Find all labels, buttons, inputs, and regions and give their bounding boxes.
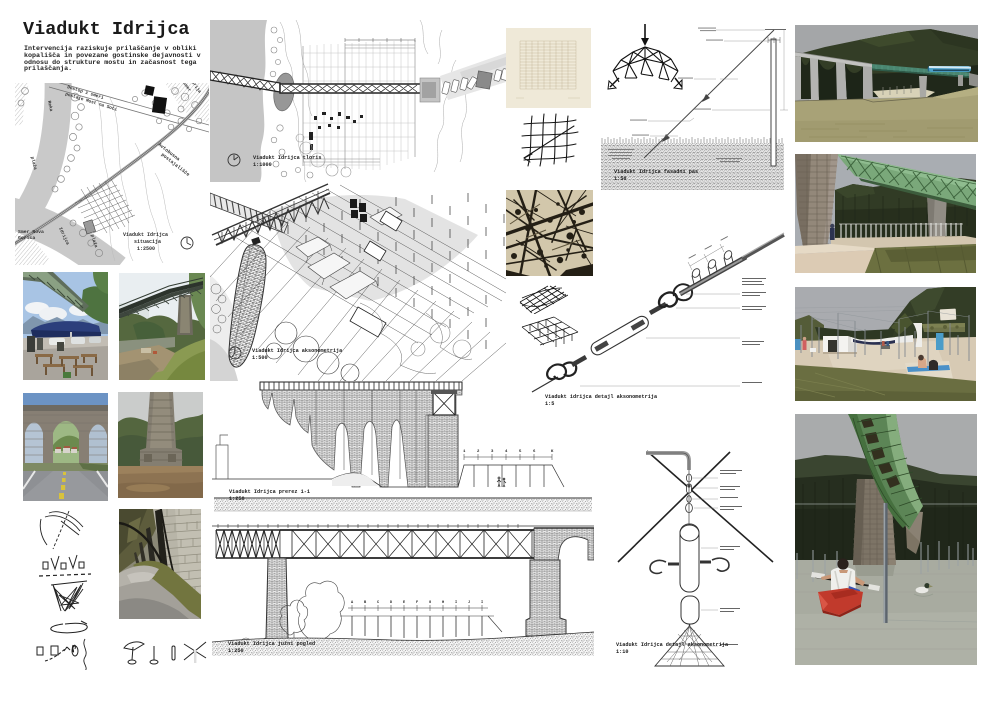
svg-text:Viadukt Idrijca prerez 1-1: Viadukt Idrijca prerez 1-1 <box>229 489 310 495</box>
svg-text:1:1000: 1:1000 <box>253 162 272 168</box>
svg-text:Viadukt idrijca detajl aksonom: Viadukt idrijca detajl aksonometrija <box>545 394 657 400</box>
svg-text:Gorica: Gorica <box>18 235 35 241</box>
svg-text:Viadukt Idrijca južni pogled: Viadukt Idrijca južni pogled <box>228 641 315 647</box>
svg-text:H: H <box>442 601 444 605</box>
svg-text:J: J <box>468 601 470 605</box>
svg-text:Viadukt Idrijca fasadni pas: Viadukt Idrijca fasadni pas <box>614 169 698 175</box>
svg-text:1:2500: 1:2500 <box>137 246 155 252</box>
svg-text:Viadukt Idrijca detajl aksonom: Viadukt Idrijca detajl aksonometrija <box>616 642 728 648</box>
svg-text:D: D <box>390 601 393 605</box>
svg-text:1:10: 1:10 <box>616 649 628 655</box>
svg-text:situacija: situacija <box>134 239 161 245</box>
svg-text:3: 3 <box>491 450 494 454</box>
svg-text:I: I <box>481 601 483 605</box>
svg-text:Viadukt Idrijca: Viadukt Idrijca <box>123 232 168 238</box>
svg-text:1:50: 1:50 <box>614 176 626 182</box>
svg-text:I: I <box>455 601 457 605</box>
svg-text:1:250: 1:250 <box>228 648 244 654</box>
svg-text:Smer Nova: Smer Nova <box>18 229 44 235</box>
svg-text:2: 2 <box>477 450 480 454</box>
svg-text:F: F <box>416 601 418 605</box>
svg-text:Viadukt Idrijca tloris: Viadukt Idrijca tloris <box>253 155 322 161</box>
svg-text:Viadukt Idrijca aksonometrija: Viadukt Idrijca aksonometrija <box>252 348 342 354</box>
svg-text:1: 1 <box>463 450 466 454</box>
svg-text:G: G <box>429 601 431 605</box>
svg-text:B: B <box>364 601 367 605</box>
svg-text:K: K <box>551 450 554 454</box>
svg-text:E: E <box>403 601 406 605</box>
svg-text:4: 4 <box>505 450 508 454</box>
svg-text:5: 5 <box>519 450 522 454</box>
svg-text:1:500: 1:500 <box>252 355 268 361</box>
svg-text:1:5: 1:5 <box>545 401 554 407</box>
svg-text:C: C <box>377 601 380 605</box>
svg-text:A: A <box>351 601 354 605</box>
svg-text:1:250: 1:250 <box>229 496 245 502</box>
svg-text:6: 6 <box>533 450 536 454</box>
